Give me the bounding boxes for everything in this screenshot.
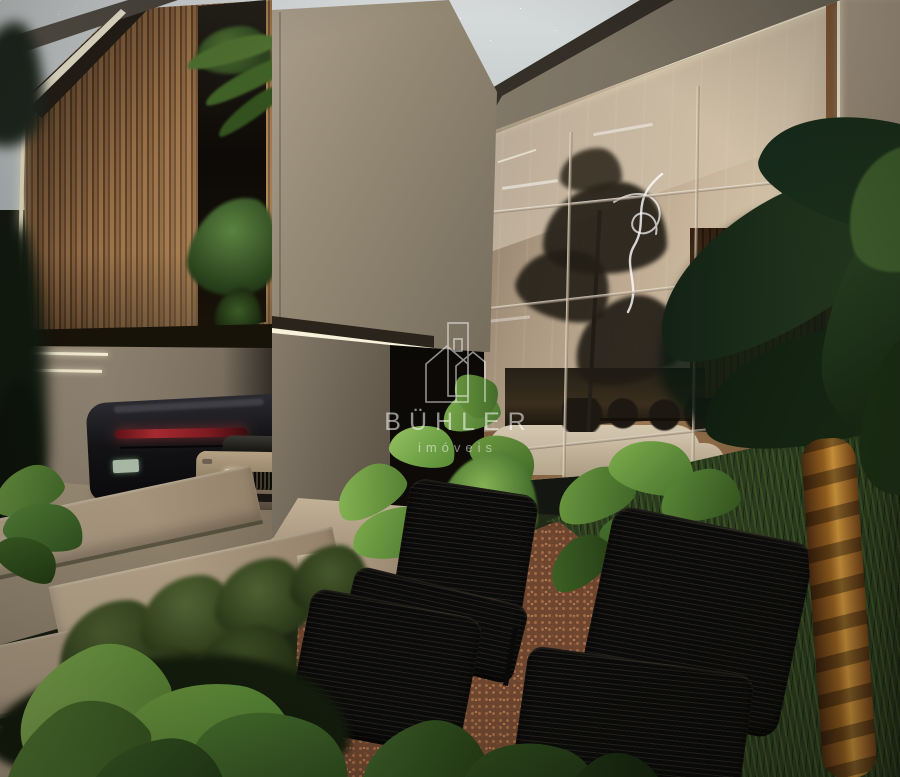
dark-sedan-license-plate	[113, 459, 140, 473]
watermark-brand: BÜHLER	[370, 408, 540, 437]
watermark: BÜHLER imóveis	[370, 322, 540, 462]
buhler-double-house-logo-icon	[423, 322, 487, 406]
central-wall-corner-line	[279, 12, 281, 334]
watermark-tagline: imóveis	[370, 440, 540, 455]
interior-table-edge	[600, 418, 695, 421]
champagne-sedan-mirror	[202, 459, 212, 464]
stars	[0, 0, 1, 1]
architectural-render-photo: BÜHLER imóveis	[0, 0, 900, 777]
